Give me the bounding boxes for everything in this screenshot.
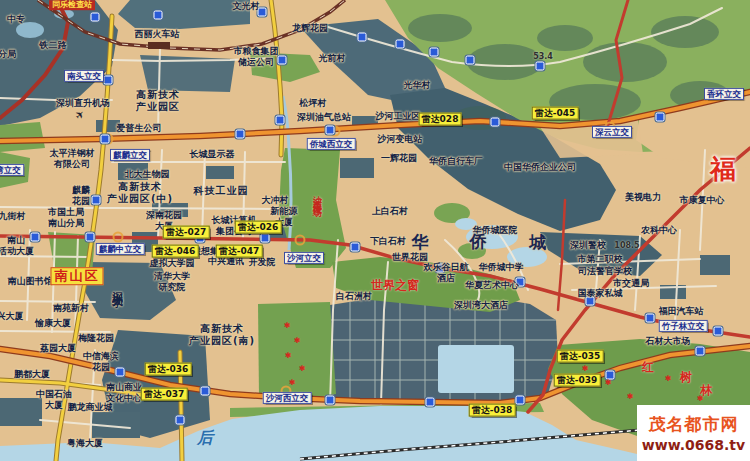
radar-label: 雷达-039: [554, 374, 601, 387]
map-label: 市康复中心: [680, 195, 725, 206]
map-label: 深圳湾大酒店: [454, 300, 508, 311]
map-label: 清华大学 研究院: [154, 271, 190, 293]
road-shield-icon: [101, 135, 110, 144]
map-label: 南苑新村: [53, 303, 89, 314]
watermark-site-name: 茂名都市网: [649, 413, 739, 436]
map-label: 开发院: [249, 257, 276, 268]
road-shield-icon: [646, 314, 655, 323]
map-label: 梅隆花园: [78, 333, 114, 344]
map-label: 愉康大厦: [35, 318, 71, 329]
interchange-label: 南头立交: [64, 70, 104, 82]
map-label: 中信海滨 花园: [83, 351, 119, 373]
vegetation-marker-icon: ✱: [627, 392, 634, 401]
vegetation-marker-icon: ✱: [605, 378, 612, 387]
map-label: 爱普生公司: [117, 123, 162, 134]
radar-label: 雷达-027: [163, 226, 210, 239]
interchange-label: 深云立交: [592, 126, 632, 138]
road-shield-icon: [358, 33, 367, 42]
map-label: 沙河工业区: [376, 111, 421, 122]
map-label: 上白石村: [372, 206, 408, 217]
road-shield-icon: [351, 243, 360, 252]
map-label: 108.5: [614, 241, 639, 251]
vegetation-marker-icon: ✱: [284, 321, 291, 330]
map-label: 司法警官学校: [578, 266, 632, 277]
radar-label: 雷达-035: [557, 350, 604, 363]
map-label: 松坪村: [300, 98, 327, 109]
road-shield-icon: [656, 113, 665, 122]
radar-label: 雷达028: [419, 113, 462, 126]
map-label: 虚拟大学园: [150, 258, 195, 269]
road-shield-icon: [176, 416, 185, 425]
map-label: 红: [642, 360, 654, 374]
map-label: 深圳油气总站: [297, 112, 351, 123]
road-shield-icon: [236, 130, 245, 139]
map-label: 福田汽车站: [659, 306, 704, 317]
map-label: 粤海大厦: [67, 438, 103, 449]
road-shield-icon: [326, 126, 335, 135]
map-label: 光前村: [319, 53, 346, 64]
map-label: 深圳警校: [570, 240, 606, 251]
interchange-label: 沙河西立交: [263, 392, 312, 404]
map-label: 南山区: [51, 267, 104, 285]
map-label: 市第二职校: [578, 254, 623, 265]
vegetation-marker-icon: ✱: [285, 351, 292, 360]
map-label: 农科中心: [641, 225, 677, 236]
radar-label: 雷达-037: [141, 388, 188, 401]
map-label: 龙辉花园: [292, 23, 328, 34]
map-label: 中国华侨企业公司: [504, 162, 576, 173]
vegetation-marker-icon: ✱: [294, 336, 301, 345]
map-label: 高新技术 产业园区(中): [107, 181, 173, 205]
map-label: 树: [680, 370, 692, 384]
map-label: 北大生物园: [125, 169, 170, 180]
railway-station-icon: [148, 42, 170, 49]
map-label: 欢乐谷日航 酒店: [424, 262, 469, 284]
road-shield-icon: [696, 347, 705, 356]
map-label: 下白石村: [370, 236, 406, 247]
map-label: 国泰家私城: [578, 288, 623, 299]
map-label: 九街村: [0, 211, 26, 222]
map-label: 分局: [0, 49, 16, 60]
map-label: 长城显示器: [190, 149, 235, 160]
road-shield-icon: [278, 56, 287, 65]
watermark: 茂名都市网 www.0668.tv: [637, 405, 750, 461]
interchange-label: 竹子林立交: [659, 320, 708, 332]
road-shield-icon: [396, 40, 405, 49]
road-shield-icon: [491, 118, 500, 127]
road-shield-icon: [154, 11, 163, 20]
map-label: 荔园大厦: [40, 343, 76, 354]
map-label: 鹏都大厦: [14, 369, 50, 380]
road-shield-icon: [104, 76, 113, 85]
map-label: 南山商业 文化中心: [106, 382, 142, 404]
radar-label: 雷达-036: [145, 363, 192, 376]
vegetation-marker-icon: ✱: [582, 364, 589, 373]
map-label: 兴大厦: [0, 311, 24, 322]
map-label: 西丽火车站: [135, 29, 180, 40]
map-label: 53.4: [533, 52, 553, 62]
road-shield-icon: [326, 396, 335, 405]
interchange-label: 香环立交: [704, 88, 744, 100]
map-label: 福: [710, 154, 736, 185]
road-shield-icon: [92, 196, 101, 205]
road-shield-icon: [91, 13, 100, 22]
map-label: 城: [530, 232, 547, 252]
map-label: 美视电力: [625, 192, 661, 203]
road-shield-icon: [201, 387, 210, 396]
map-label: 世界花园: [392, 252, 428, 263]
map-label: 市粮食集团 储运公司: [234, 46, 279, 68]
interchange-label: 麒麟中立交: [96, 243, 145, 255]
map-label: 高新技术 产业园区(南): [189, 323, 255, 347]
map-label: 深圳直升机场: [56, 98, 110, 109]
road-shield-icon: [536, 62, 545, 71]
watermark-url: www.0668.tv: [642, 437, 745, 453]
interchange-label: 沙河立交: [284, 252, 324, 264]
map-label: 华侨自行车厂: [429, 156, 483, 167]
interchange-label: 湾立交: [0, 164, 24, 176]
map-label: 麒麟 花园: [72, 185, 90, 207]
radar-label: 雷达-045: [532, 107, 579, 120]
map-label: 铁二路: [40, 40, 67, 51]
road-shield-icon: [430, 48, 439, 57]
map-label: 光华村: [404, 80, 431, 91]
radar-label: 雷达-046: [152, 245, 199, 258]
road-shield-icon: [426, 398, 435, 407]
map-label: 华侨城中学: [479, 262, 524, 273]
map-label: 同乐检查站: [49, 0, 95, 10]
map-label: 华: [412, 232, 429, 252]
radar-label: 雷达-026: [235, 221, 282, 234]
map-label: 大冲村: [262, 195, 289, 206]
map-label: 高新技术 产业园区: [136, 89, 180, 113]
map-label: 南山图书馆: [8, 276, 53, 287]
road-shield-icon: [516, 396, 525, 405]
road-shield-icon: [714, 327, 723, 336]
interchange-label: 麒麟立交: [110, 149, 150, 161]
map-label: 南山 活动大厦: [0, 235, 34, 257]
map-label: 科技工业园: [194, 185, 249, 197]
map-label: 深圳大学: [110, 282, 123, 290]
map-label: 林: [700, 383, 712, 397]
map-label: 中专: [7, 14, 25, 25]
map-label: 华夏艺术中心: [465, 280, 519, 291]
interchange-label: 侨城西立交: [307, 138, 356, 150]
road-shield-icon: [86, 233, 95, 242]
vegetation-marker-icon: ✱: [289, 378, 296, 387]
vegetation-marker-icon: ✱: [299, 364, 306, 373]
map-label: 白石洲村: [336, 291, 372, 302]
map-label: 太平洋钢材 有限公司: [50, 148, 95, 170]
road-shield-icon: [261, 234, 270, 243]
map-label: 侨: [470, 231, 487, 251]
road-shield-icon: [276, 116, 285, 125]
radar-label: 雷达-038: [469, 404, 516, 417]
map-label: 文光村: [233, 1, 260, 12]
map-label: 沙河高尔夫球场: [312, 189, 323, 203]
map-label: 沙河变电站: [378, 134, 423, 145]
vegetation-marker-icon: ✱: [665, 374, 672, 383]
map-label: 市国土局 南山分局: [48, 207, 84, 229]
map-label: 石材大市场: [646, 336, 691, 347]
map-label: 世界之窗: [371, 278, 419, 292]
radar-label: 雷达-047: [216, 245, 263, 258]
map-label: 一辉花园: [381, 153, 417, 164]
map-label: 后: [197, 428, 213, 447]
city-map[interactable]: 茂名都市网 www.0668.tv ✱✱✱✱✱✱✱✱✱✱✱✱✈同乐检查站中专铁二…: [0, 0, 750, 461]
road-shield-icon: [466, 56, 475, 65]
